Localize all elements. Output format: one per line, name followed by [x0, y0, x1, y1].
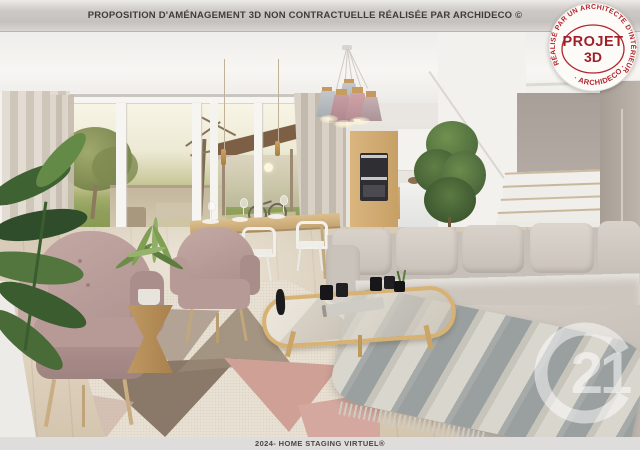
wine-glass — [280, 195, 288, 205]
door-frame-line — [621, 109, 623, 237]
oven-window — [363, 185, 385, 197]
room-photo: 21 — [0, 31, 640, 437]
stamp-title-line2: 3D — [584, 49, 602, 65]
wine-glass-stem — [243, 206, 244, 215]
dinner-plate — [202, 219, 219, 224]
wine-glass — [208, 201, 216, 211]
wooden-stool — [124, 305, 176, 373]
sofa-cushion — [598, 221, 640, 273]
black-cup — [370, 277, 382, 291]
projet-3d-stamp-icon: RÉALISÉ PAR UN ARCHITECTE D'INTÉRIEUR · … — [548, 2, 638, 92]
dinner-plate — [232, 217, 248, 222]
pendant-bulb — [275, 141, 280, 156]
right-wall — [600, 81, 640, 241]
black-cup — [336, 283, 348, 297]
sofa-cushion — [396, 227, 458, 275]
oven-handle — [361, 177, 387, 180]
chair-leg — [82, 385, 85, 427]
sofa-cushion — [462, 225, 524, 273]
lamp-glow — [350, 117, 370, 125]
bottom-banner: 2024- HOME STAGING VIRTUEL® — [0, 437, 640, 450]
staged-room-image: 21 PROPOSITION D'AMÉNAGEMENT 3D NON CONT… — [0, 0, 640, 450]
chair-leg — [266, 255, 272, 281]
top-banner: PROPOSITION D'AMÉNAGEMENT 3D NON CONTRAC… — [0, 0, 640, 32]
sofa-cushion — [530, 223, 594, 273]
wine-glass-stem — [283, 203, 284, 212]
coffee-table — [262, 283, 458, 363]
black-cup — [320, 285, 333, 300]
oven-handle — [361, 155, 387, 158]
window-head-shadow — [40, 94, 310, 97]
wine-glass-stem — [211, 209, 212, 218]
chair-leg — [297, 247, 302, 271]
pendant-cord — [278, 59, 279, 143]
chair-leg — [239, 309, 248, 341]
c21-logo: 21 — [533, 300, 640, 437]
black-vase — [275, 289, 285, 315]
cluster-pendant-lamp — [316, 45, 392, 123]
plant-pot — [138, 289, 160, 305]
pendant-cord — [224, 59, 225, 151]
chair-leg — [185, 309, 193, 343]
pendant-bulb — [221, 149, 226, 165]
watermark-label: 21 — [571, 341, 631, 406]
wine-glass — [240, 198, 248, 208]
oven-stack — [360, 153, 388, 201]
bottom-banner-text: 2024- HOME STAGING VIRTUEL® — [0, 437, 640, 450]
top-banner-text: PROPOSITION D'AMÉNAGEMENT 3D NON CONTRAC… — [0, 0, 610, 31]
banana-plant — [0, 141, 125, 386]
table-plant-pot — [394, 281, 405, 292]
stamp-title-line1: PROJET — [562, 34, 623, 50]
chair-leg — [216, 313, 219, 343]
lamp-shade-cap — [366, 91, 376, 98]
armchair-seat — [178, 279, 250, 309]
dinner-plate — [268, 214, 285, 219]
chair-leg — [44, 379, 56, 427]
table-leg — [358, 335, 362, 357]
